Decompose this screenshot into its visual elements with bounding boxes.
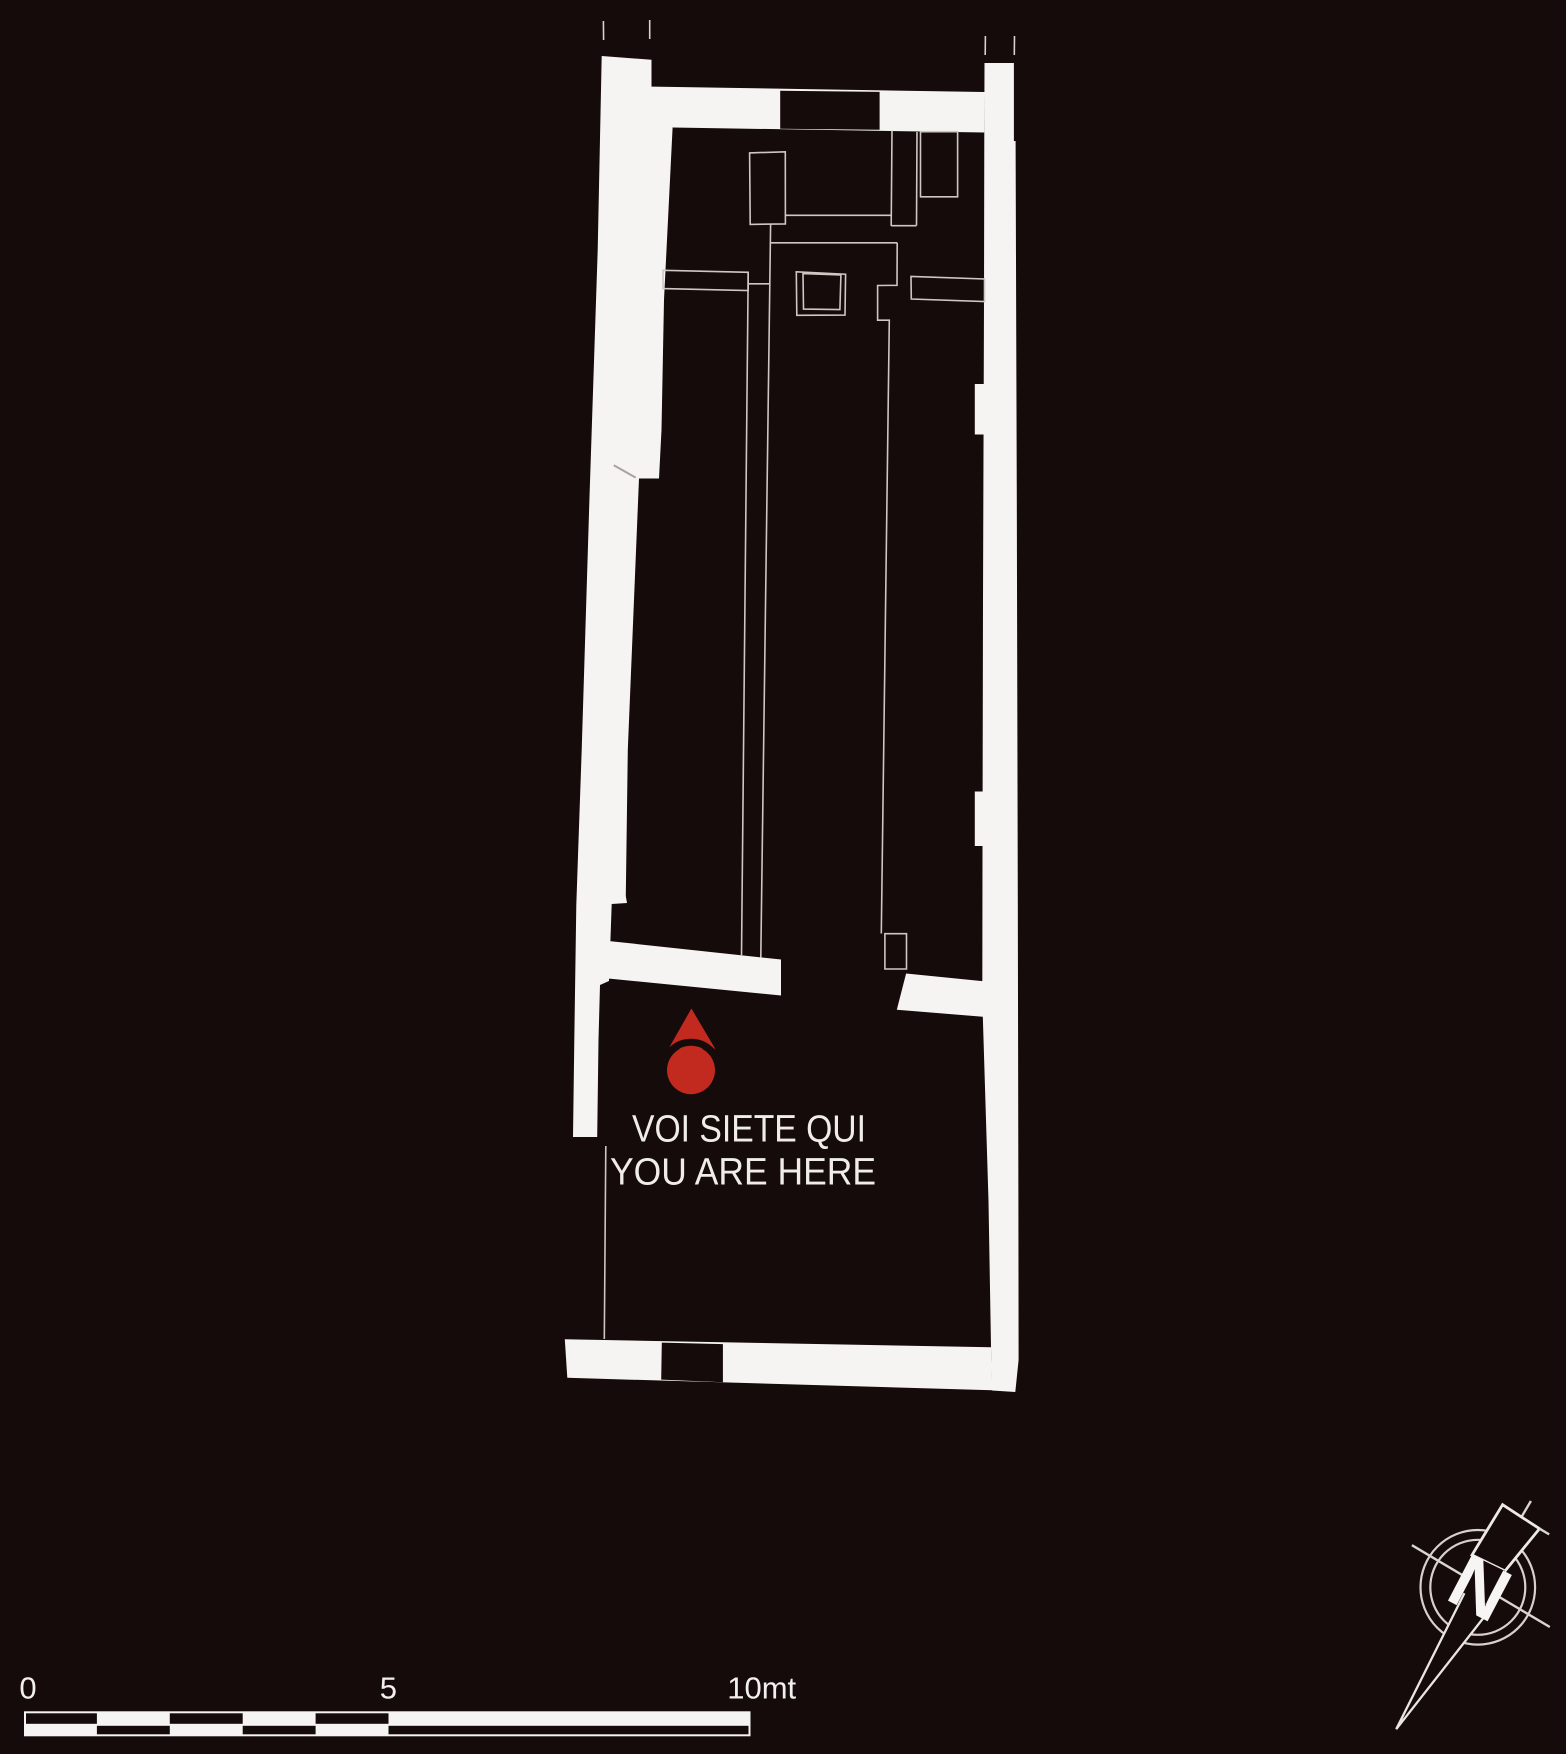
svg-text:YOU ARE HERE: YOU ARE HERE <box>610 1152 876 1194</box>
svg-text:VOI SIETE QUI: VOI SIETE QUI <box>632 1109 866 1151</box>
svg-text:0: 0 <box>19 1671 36 1706</box>
svg-text:5: 5 <box>380 1671 397 1706</box>
svg-text:10mt: 10mt <box>727 1671 796 1706</box>
